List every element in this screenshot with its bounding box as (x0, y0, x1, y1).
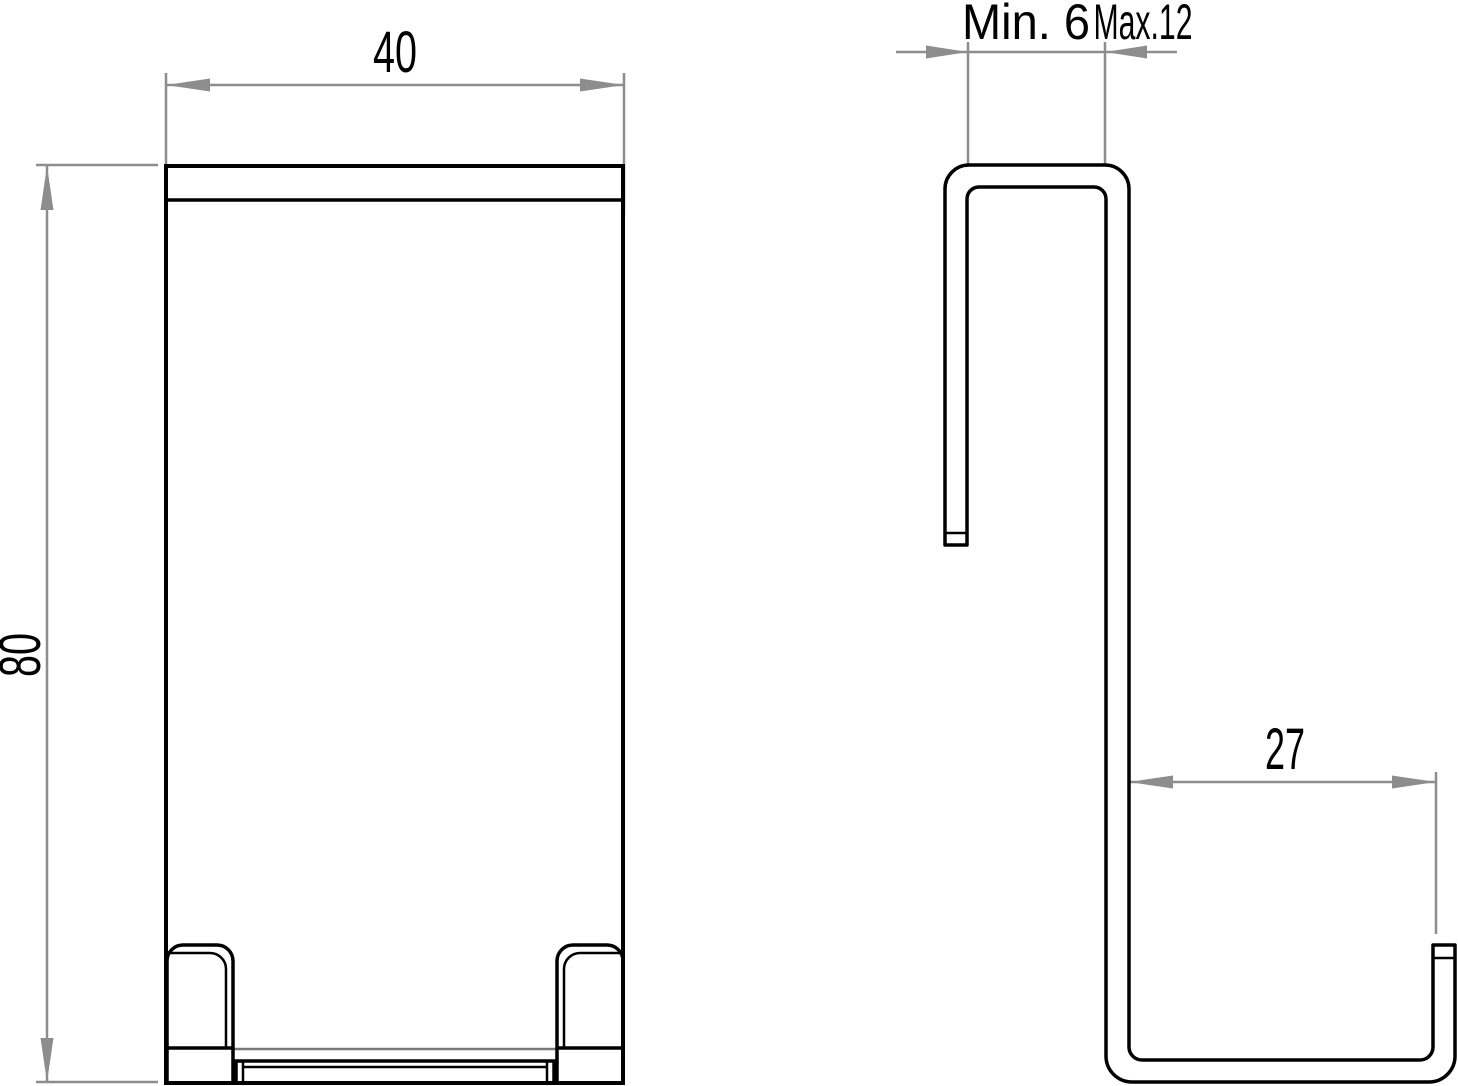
technical-drawing-canvas: 40 80 Min. 6 Max.12 27 (0, 0, 1458, 1086)
dimension-label-door-thickness-max: Max.12 (1094, 0, 1193, 50)
front-left-leg-outline (167, 945, 233, 1083)
front-bottom-lip-outline (236, 1061, 554, 1083)
front-left-leg-inner-edge (167, 953, 226, 1048)
technical-drawing: 40 80 Min. 6 Max.12 27 (0, 0, 1458, 1086)
arrowhead-right (1392, 776, 1436, 789)
dimension-label-front-width: 40 (373, 20, 417, 85)
dimension-label-hook-depth: 27 (1265, 717, 1305, 782)
side-view (945, 165, 1455, 1082)
dimension-label-door-thickness-min: Min. 6 (962, 0, 1090, 50)
dimension-hook-depth: 27 (1129, 717, 1436, 934)
arrowhead-left (166, 79, 210, 92)
dimension-front-width: 40 (166, 20, 624, 215)
dimension-label-front-height: 80 (0, 633, 53, 677)
front-right-leg-outline (557, 945, 623, 1083)
front-view (166, 166, 623, 1083)
arrowhead-bottom (41, 1038, 54, 1082)
arrowhead-left (1129, 776, 1173, 789)
arrowhead-top (41, 166, 54, 210)
arrowhead-right (580, 79, 624, 92)
front-body-outline (166, 166, 623, 1083)
dimension-front-height: 80 (0, 165, 158, 1082)
front-right-leg-inner-edge (564, 953, 623, 1048)
hook-profile-outline (945, 165, 1455, 1082)
